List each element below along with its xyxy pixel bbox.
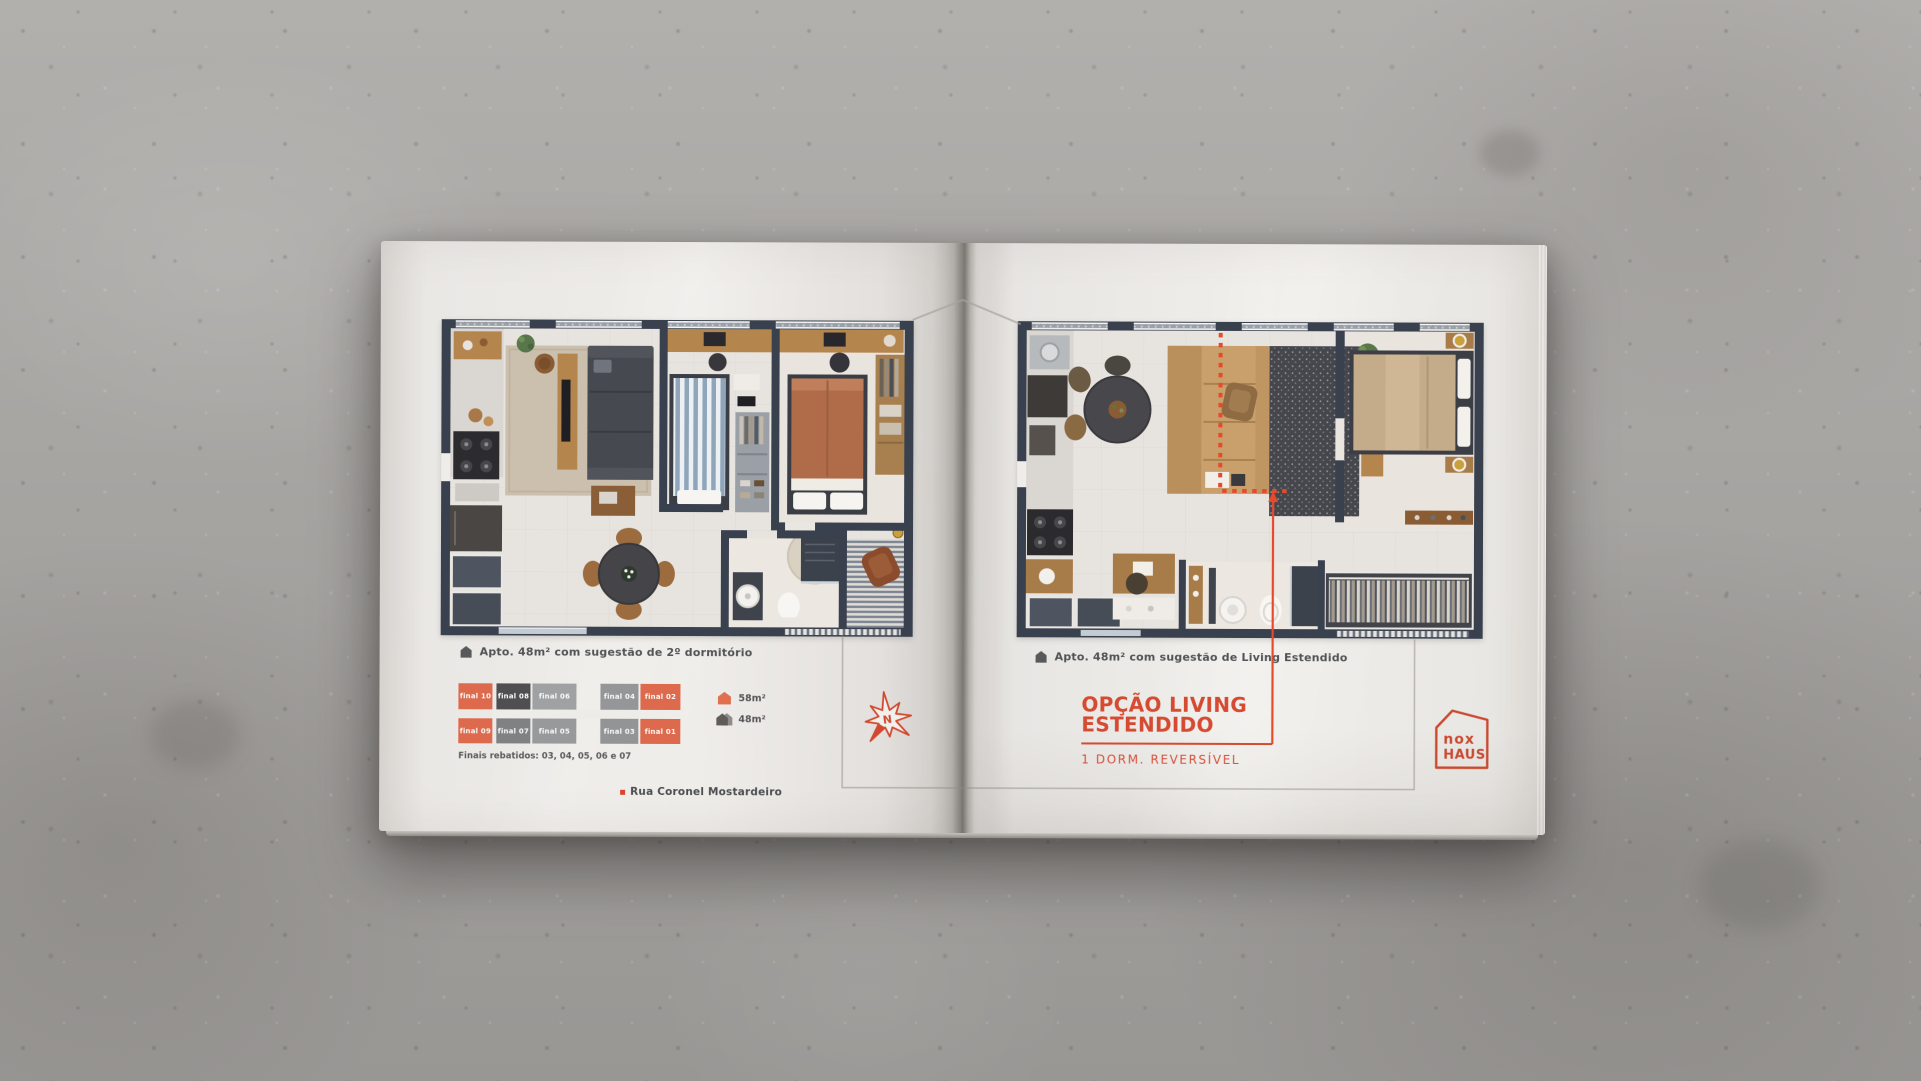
- option-title: OPÇÃO LIVING ESTENDIDO: [1081, 694, 1247, 735]
- magazine-spread: Apto. 48m² com sugestão de 2º dormitório…: [379, 241, 1547, 835]
- legend-item-48: 48m²: [716, 711, 765, 727]
- compass-north-icon: N: [855, 687, 919, 751]
- house-icon-gray: [716, 712, 732, 726]
- left-plan-caption: Apto. 48m² com sugestão de 2º dormitório: [460, 645, 753, 659]
- house-icon: [460, 645, 473, 658]
- legend-label-58: 58m²: [738, 693, 765, 704]
- street-name: Rua Coronel Mostardeiro: [630, 786, 782, 799]
- legend-item-58: 58m²: [716, 690, 765, 706]
- concrete-stain: [150, 700, 240, 770]
- keyplan-unit-final-08: final 08: [496, 683, 530, 709]
- concrete-stain: [1700, 840, 1820, 930]
- legend-label-48: 48m²: [738, 714, 765, 725]
- keyplan-unit-final-06: final 06: [532, 683, 576, 709]
- option-subtitle: 1 DORM. REVERSÍVEL: [1081, 752, 1240, 767]
- keyplan-unit-final-03: final 03: [600, 719, 638, 744]
- logo-text-haus: HAUS: [1443, 748, 1486, 763]
- right-plan-caption-label: Apto. 48m² com sugestão de Living Estend…: [1055, 650, 1348, 664]
- keyplan-unit-final-01: final 01: [640, 719, 680, 744]
- keyplan-unit-final-10: final 10: [458, 683, 492, 709]
- option-title-line2: ESTENDIDO: [1081, 714, 1247, 735]
- house-icon-orange: [716, 691, 732, 705]
- floor-plan-left-image: [441, 319, 914, 637]
- noxhaus-logo: nox HAUS: [1431, 707, 1493, 771]
- keyplan-unit-final-05: final 05: [532, 718, 576, 743]
- concrete-stain: [1480, 130, 1540, 176]
- keyplan-note: Finais rebatidos: 03, 04, 05, 06 e 07: [458, 751, 631, 762]
- keyplan-grid: final 10 final 08 final 06 final 04 fina…: [458, 683, 681, 684]
- logo-text-nox: nox: [1443, 732, 1475, 748]
- compass-letter: N: [882, 713, 893, 727]
- floor-plan-right-image: [1017, 321, 1484, 639]
- street-label: Rua Coronel Mostardeiro: [620, 786, 782, 799]
- house-icon: [1035, 650, 1048, 663]
- area-legend: 58m² 48m²: [716, 690, 765, 732]
- street-bullet-icon: [620, 789, 625, 794]
- keyplan-unit-final-02: final 02: [640, 684, 680, 710]
- keyplan-unit-final-07: final 07: [496, 718, 530, 743]
- left-plan-caption-label: Apto. 48m² com sugestão de 2º dormitório: [480, 645, 753, 659]
- page-stack-edge: [1536, 245, 1547, 835]
- keyplan-unit-final-09: final 09: [458, 718, 492, 743]
- keyplan-unit-final-04: final 04: [600, 684, 638, 710]
- right-plan-caption: Apto. 48m² com sugestão de Living Estend…: [1035, 650, 1348, 664]
